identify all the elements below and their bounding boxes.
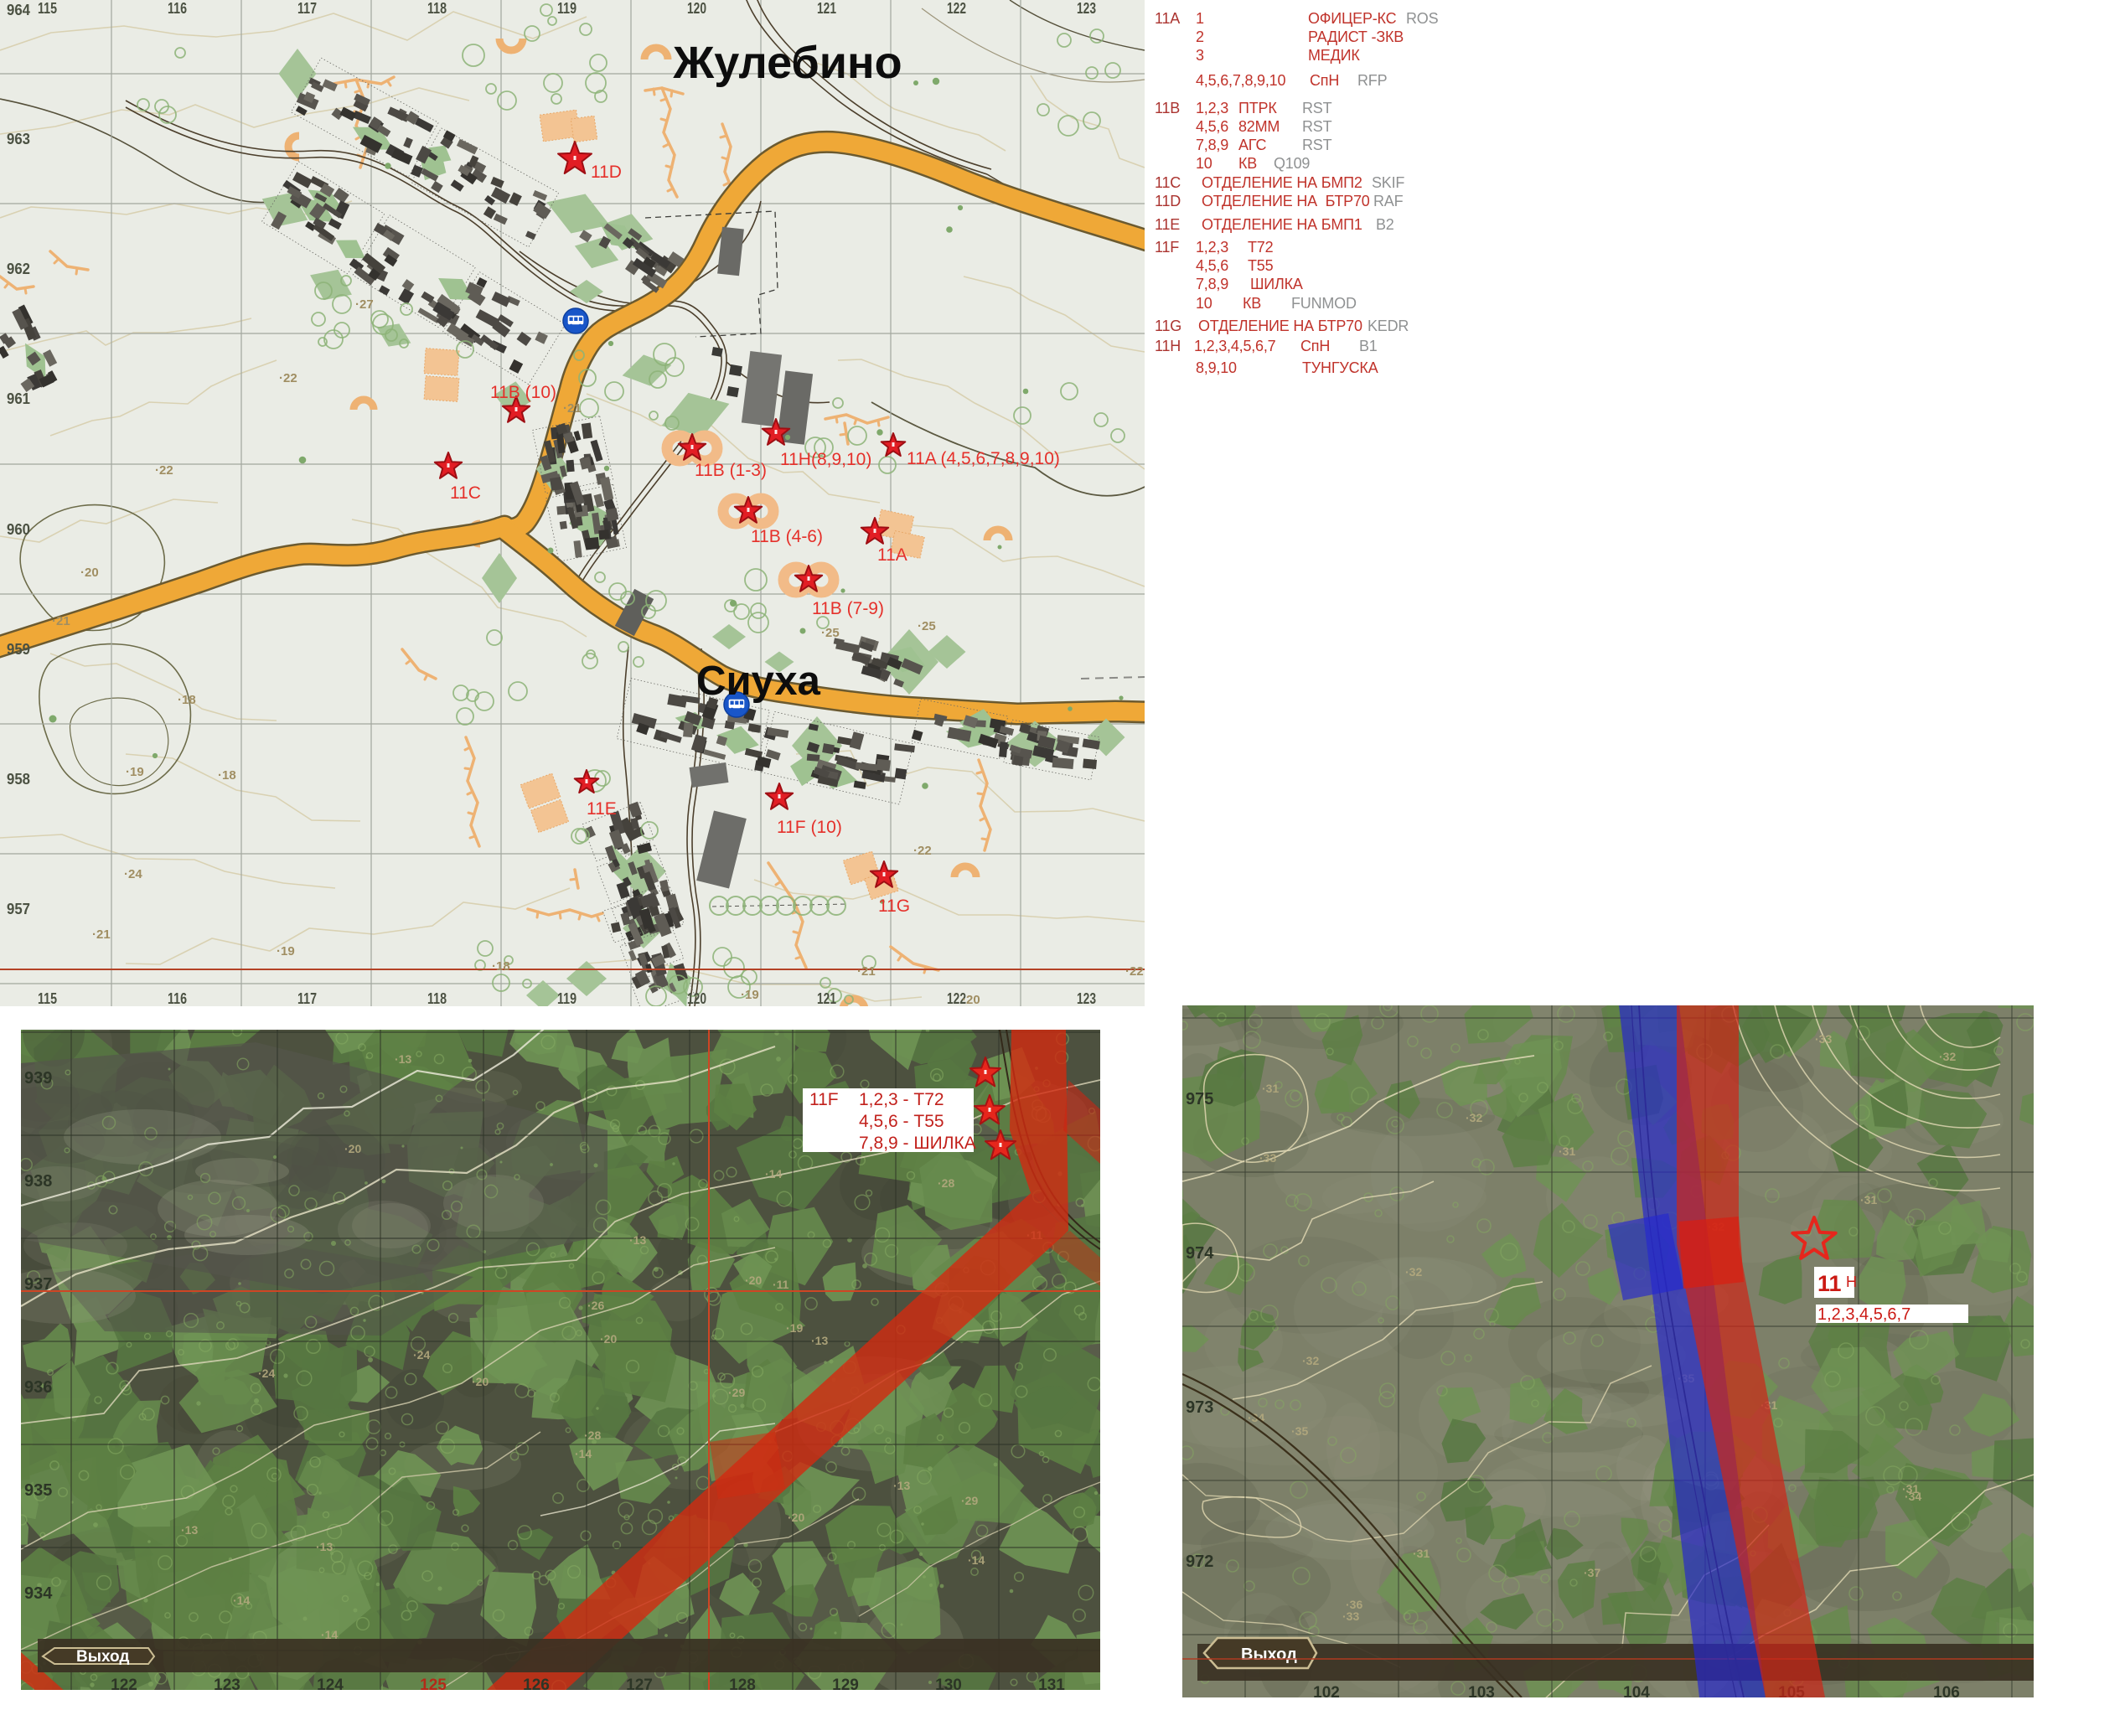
svg-text:964: 964 bbox=[7, 2, 30, 18]
svg-text:975: 975 bbox=[1186, 1090, 1213, 1108]
svg-text:·14: ·14 bbox=[765, 1167, 782, 1181]
svg-text:104: 104 bbox=[1623, 1684, 1650, 1697]
svg-text:·13: ·13 bbox=[893, 1479, 910, 1492]
svg-text:·26: ·26 bbox=[587, 1299, 604, 1312]
svg-text:·14: ·14 bbox=[968, 1553, 985, 1567]
svg-text:11E: 11E bbox=[587, 799, 617, 819]
svg-text:11C: 11C bbox=[450, 483, 481, 503]
svg-text:·25: ·25 bbox=[821, 626, 840, 640]
svg-text:·13: ·13 bbox=[181, 1523, 198, 1537]
svg-text:·22: ·22 bbox=[913, 844, 932, 858]
svg-text:118: 118 bbox=[427, 990, 447, 1006]
svg-text:123: 123 bbox=[1077, 990, 1096, 1006]
svg-text:106: 106 bbox=[1933, 1684, 1960, 1697]
svg-text:11B (4-6): 11B (4-6) bbox=[751, 527, 823, 546]
svg-text:11B (7-9): 11B (7-9) bbox=[812, 599, 884, 618]
svg-text:·20: ·20 bbox=[788, 1511, 804, 1524]
svg-text:·19: ·19 bbox=[126, 765, 144, 779]
svg-text:Н: Н bbox=[1846, 1274, 1857, 1290]
svg-text:120: 120 bbox=[687, 990, 706, 1006]
svg-text:11D: 11D bbox=[591, 163, 622, 182]
svg-text:963: 963 bbox=[7, 131, 30, 147]
svg-text:·25: ·25 bbox=[918, 619, 936, 633]
svg-text:962: 962 bbox=[7, 261, 30, 277]
svg-text:123: 123 bbox=[214, 1677, 240, 1690]
svg-text:·11: ·11 bbox=[773, 1278, 789, 1291]
svg-text:119: 119 bbox=[557, 0, 576, 17]
svg-text:117: 117 bbox=[297, 990, 317, 1006]
svg-text:·28: ·28 bbox=[584, 1429, 601, 1442]
svg-text:·22: ·22 bbox=[155, 463, 173, 478]
svg-text:·31: ·31 bbox=[1860, 1193, 1877, 1206]
svg-text:972: 972 bbox=[1186, 1553, 1213, 1571]
svg-text:·13: ·13 bbox=[395, 1052, 411, 1066]
svg-text:·32: ·32 bbox=[1939, 1050, 1956, 1063]
svg-text:·33: ·33 bbox=[1259, 1151, 1276, 1165]
svg-text:124: 124 bbox=[317, 1677, 344, 1690]
svg-text:·20: ·20 bbox=[600, 1332, 617, 1346]
svg-text:·18: ·18 bbox=[218, 768, 236, 783]
svg-text:121: 121 bbox=[817, 0, 836, 17]
svg-text:·24: ·24 bbox=[258, 1367, 275, 1380]
svg-text:117: 117 bbox=[297, 0, 317, 17]
svg-text:Сиуха: Сиуха bbox=[696, 659, 821, 704]
svg-text:·36: ·36 bbox=[1346, 1598, 1362, 1611]
svg-text:123: 123 bbox=[1077, 0, 1096, 17]
svg-text:103: 103 bbox=[1468, 1684, 1495, 1697]
svg-text:116: 116 bbox=[168, 0, 187, 17]
svg-text:·33: ·33 bbox=[1815, 1032, 1832, 1046]
svg-text:·24: ·24 bbox=[413, 1348, 430, 1361]
svg-text:11A: 11A bbox=[877, 545, 907, 565]
svg-text:·13: ·13 bbox=[316, 1540, 333, 1553]
svg-text:·21: ·21 bbox=[52, 614, 70, 628]
svg-text:·18: ·18 bbox=[492, 959, 510, 974]
svg-text:·20: ·20 bbox=[80, 566, 99, 580]
svg-text:937: 937 bbox=[24, 1275, 52, 1294]
svg-text:·21: ·21 bbox=[857, 964, 876, 979]
svg-text:958: 958 bbox=[7, 771, 30, 788]
svg-text:·20: ·20 bbox=[745, 1274, 762, 1287]
svg-text:127: 127 bbox=[626, 1677, 653, 1690]
svg-text:119: 119 bbox=[557, 990, 576, 1006]
svg-text:11Н(8,9,10): 11Н(8,9,10) bbox=[780, 450, 871, 469]
svg-text:973: 973 bbox=[1186, 1398, 1213, 1417]
svg-text:·20: ·20 bbox=[344, 1142, 361, 1155]
svg-text:116: 116 bbox=[168, 990, 187, 1006]
svg-text:·31: ·31 bbox=[1262, 1082, 1279, 1095]
svg-text:·29: ·29 bbox=[961, 1494, 978, 1507]
svg-text:938: 938 bbox=[24, 1172, 52, 1191]
svg-text:959: 959 bbox=[7, 641, 30, 658]
svg-text:·13: ·13 bbox=[629, 1233, 646, 1247]
svg-text:130: 130 bbox=[935, 1677, 962, 1690]
svg-text:·27: ·27 bbox=[355, 297, 374, 312]
svg-text:·14: ·14 bbox=[233, 1594, 250, 1607]
svg-text:·18: ·18 bbox=[178, 693, 196, 707]
svg-text:935: 935 bbox=[24, 1481, 52, 1500]
svg-text:11A (4,5,6,7,8,9,10): 11A (4,5,6,7,8,9,10) bbox=[907, 449, 1060, 468]
svg-text:·33: ·33 bbox=[1342, 1609, 1359, 1623]
svg-text:·32: ·32 bbox=[1405, 1265, 1422, 1279]
svg-text:7,8,9 - ШИЛКА: 7,8,9 - ШИЛКА bbox=[859, 1134, 976, 1153]
svg-text:125: 125 bbox=[420, 1677, 447, 1690]
svg-text:1,2,3,4,5,6,7: 1,2,3,4,5,6,7 bbox=[1817, 1305, 1910, 1324]
svg-text:·31: ·31 bbox=[1413, 1547, 1430, 1560]
svg-text:121: 121 bbox=[817, 990, 836, 1006]
svg-text:·21: ·21 bbox=[563, 401, 582, 416]
svg-text:·31: ·31 bbox=[1902, 1482, 1919, 1496]
svg-text:·21: ·21 bbox=[92, 927, 111, 942]
svg-text:11B (1-3): 11B (1-3) bbox=[695, 461, 767, 480]
svg-text:128: 128 bbox=[729, 1677, 756, 1690]
svg-text:129: 129 bbox=[832, 1677, 859, 1690]
svg-text:961: 961 bbox=[7, 390, 30, 407]
svg-text:936: 936 bbox=[24, 1378, 52, 1397]
svg-text:·37: ·37 bbox=[1584, 1566, 1600, 1579]
svg-text:11G: 11G bbox=[878, 896, 910, 916]
svg-text:974: 974 bbox=[1186, 1244, 1214, 1263]
svg-text:957: 957 bbox=[7, 901, 30, 917]
svg-text:11F: 11F bbox=[809, 1090, 839, 1109]
svg-text:102: 102 bbox=[1313, 1684, 1340, 1697]
svg-text:11B (10): 11B (10) bbox=[490, 383, 556, 402]
svg-text:960: 960 bbox=[7, 521, 30, 538]
svg-text:Выход: Выход bbox=[76, 1648, 129, 1666]
svg-text:115: 115 bbox=[38, 0, 57, 17]
svg-text:4,5,6 - Т55: 4,5,6 - Т55 bbox=[859, 1112, 944, 1131]
svg-text:Жулебино: Жулебино bbox=[672, 38, 902, 88]
svg-text:·22: ·22 bbox=[1125, 964, 1144, 979]
svg-text:11: 11 bbox=[1817, 1271, 1842, 1296]
svg-text:·19: ·19 bbox=[277, 944, 295, 958]
svg-text:·19: ·19 bbox=[741, 988, 759, 1002]
svg-text:·32: ·32 bbox=[1302, 1354, 1319, 1367]
svg-text:·35: ·35 bbox=[1291, 1424, 1308, 1438]
svg-text:·28: ·28 bbox=[938, 1176, 954, 1190]
svg-text:·22: ·22 bbox=[279, 371, 297, 385]
svg-text:·19: ·19 bbox=[786, 1321, 803, 1335]
svg-text:11F (10): 11F (10) bbox=[777, 818, 842, 837]
svg-text:115: 115 bbox=[38, 990, 57, 1006]
svg-text:934: 934 bbox=[24, 1584, 53, 1603]
svg-text:1,2,3 - Т72: 1,2,3 - Т72 bbox=[859, 1090, 944, 1109]
svg-text:939: 939 bbox=[24, 1069, 52, 1088]
svg-text:·29: ·29 bbox=[728, 1386, 745, 1399]
svg-text:·14: ·14 bbox=[575, 1447, 592, 1460]
svg-text:118: 118 bbox=[427, 0, 447, 17]
svg-text:122: 122 bbox=[111, 1677, 137, 1690]
svg-text:·13: ·13 bbox=[811, 1334, 828, 1347]
svg-text:122: 122 bbox=[947, 0, 966, 17]
svg-text:·24: ·24 bbox=[124, 867, 142, 881]
svg-text:Выход: Выход bbox=[1241, 1646, 1297, 1664]
svg-text:·20: ·20 bbox=[962, 993, 980, 1006]
svg-text:·31: ·31 bbox=[1559, 1144, 1575, 1158]
svg-text:131: 131 bbox=[1038, 1677, 1065, 1690]
svg-text:·32: ·32 bbox=[1466, 1111, 1482, 1124]
svg-text:120: 120 bbox=[687, 0, 706, 17]
svg-text:·20: ·20 bbox=[472, 1375, 489, 1388]
svg-text:126: 126 bbox=[523, 1677, 550, 1690]
